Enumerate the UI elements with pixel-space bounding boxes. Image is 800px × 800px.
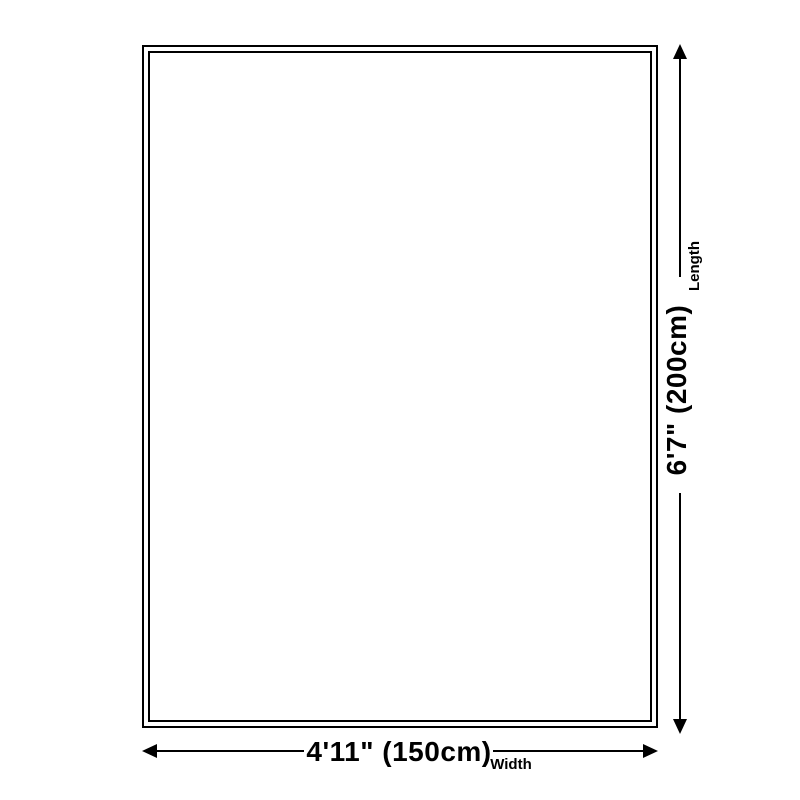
width-dimension-label: Width — [471, 757, 551, 773]
arrow-right-icon — [643, 744, 658, 758]
rug-outline — [142, 45, 658, 728]
arrow-down-icon — [673, 719, 687, 734]
length-dimension-value: 6'7" (200cm) — [662, 280, 692, 500]
width-dimension-line-right — [493, 750, 645, 752]
length-dimension-line-top — [679, 57, 681, 277]
rug-inner-border — [148, 51, 652, 722]
size-diagram: Length 6'7" (200cm) 4'11" (150cm) Width — [0, 0, 800, 800]
length-dimension-line-bottom — [679, 493, 681, 721]
